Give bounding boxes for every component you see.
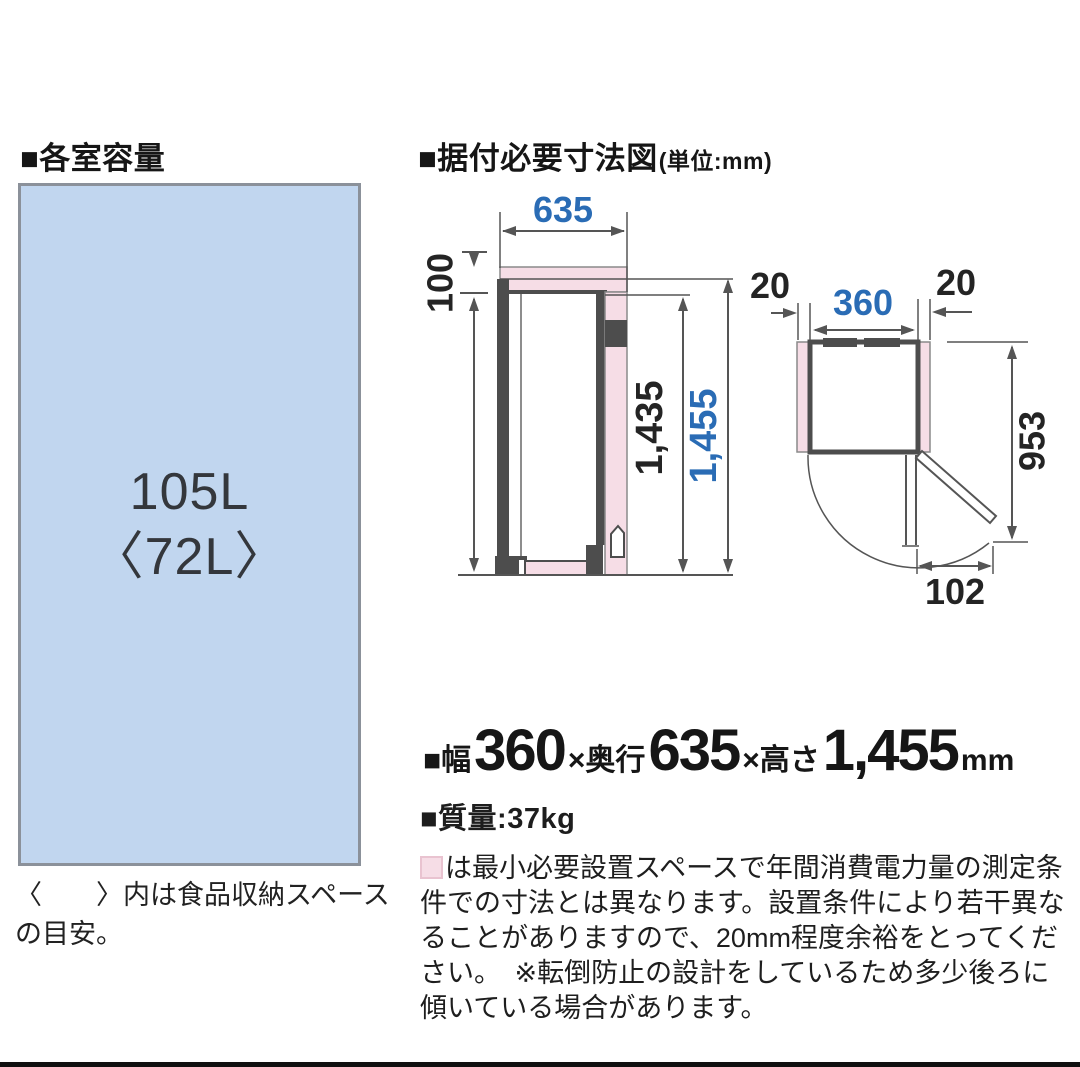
dim-total-height-1455: 1,455 — [683, 279, 733, 573]
spec-unit: mm — [961, 744, 1014, 778]
bottom-border-bar — [0, 1062, 1080, 1067]
dim-label-swing-depth: 953 — [1012, 411, 1053, 471]
base-clearance-strip — [525, 561, 587, 575]
capacity-section-heading: ■各室容量 — [20, 133, 165, 178]
capacity-sub-value: 〈72L〉 — [92, 525, 288, 590]
spec-width-label: ■幅 — [423, 735, 471, 779]
fridge-back-wall — [497, 279, 509, 575]
mass-label: ■質量: — [420, 803, 507, 835]
fridge-body-plan — [810, 342, 918, 452]
pink-legend-swatch — [420, 856, 443, 879]
spec-depth-label: ×奥行 — [568, 735, 646, 779]
dim-right-clearance-20: 20 — [932, 262, 976, 317]
capacity-box: 105L 〈72L〉 — [18, 183, 361, 866]
spec-sheet-page: ■各室容量 105L 〈72L〉 〈 〉内は食品収納スペースの目安。 ■据付必要… — [0, 0, 1080, 1067]
installation-heading-unit: (単位:mm) — [659, 148, 772, 174]
dim-width-360: 360 — [813, 282, 915, 335]
spec-depth-value: 635 — [648, 722, 739, 780]
mass-value: 37kg — [507, 803, 575, 835]
dim-label-top-clearance: 100 — [420, 253, 461, 313]
door-bottom-notch — [611, 526, 624, 557]
dim-label-total-height: 1,455 — [683, 388, 725, 483]
spec-width-value: 360 — [474, 722, 565, 780]
fridge-front-wall — [596, 292, 605, 545]
dimensions-spec-line: ■幅 360 ×奥行 635 ×高さ 1,455 mm — [420, 722, 1017, 780]
door-swing-arc — [808, 455, 989, 568]
installation-footnote: は最小必要設置スペースで年間消費電力量の測定条件での寸法とは異なります。設置条件… — [420, 851, 1068, 1026]
footnote-text: は最小必要設置スペースで年間消費電力量の測定条件での寸法とは異なります。設置条件… — [420, 853, 1065, 1023]
installation-section-heading: ■据付必要寸法図(単位:mm) — [418, 133, 772, 178]
installation-heading-text: ■据付必要寸法図 — [418, 141, 658, 176]
side-view-drawing: 635 100 1,435 — [420, 189, 733, 575]
door-open-max — [916, 451, 996, 523]
dim-door-offset-102: 102 — [917, 546, 993, 612]
dim-label-door-offset: 102 — [925, 571, 985, 612]
capacity-caption: 〈 〉内は食品収納スペースの目安。 — [15, 876, 391, 954]
door-hinge-block — [605, 320, 627, 347]
installation-diagram: 635 100 1,435 — [420, 175, 1080, 640]
dim-label-width: 360 — [833, 282, 893, 323]
dim-label-body-height: 1,435 — [629, 380, 671, 475]
dim-swing-depth-953: 953 — [947, 342, 1053, 542]
spec-height-label: ×高さ — [742, 735, 820, 779]
dim-label-left-clearance: 20 — [750, 265, 790, 306]
spec-height-value: 1,455 — [823, 722, 958, 780]
mass-spec-line: ■質量:37kg — [420, 795, 575, 837]
top-view-drawing: 20 20 360 — [750, 262, 1053, 612]
dim-top-clearance-100: 100 — [420, 252, 488, 572]
dim-label-right-clearance: 20 — [936, 262, 976, 303]
dim-label-depth: 635 — [533, 189, 593, 230]
capacity-main-value: 105L — [130, 460, 250, 525]
dim-left-clearance-20: 20 — [750, 265, 797, 318]
